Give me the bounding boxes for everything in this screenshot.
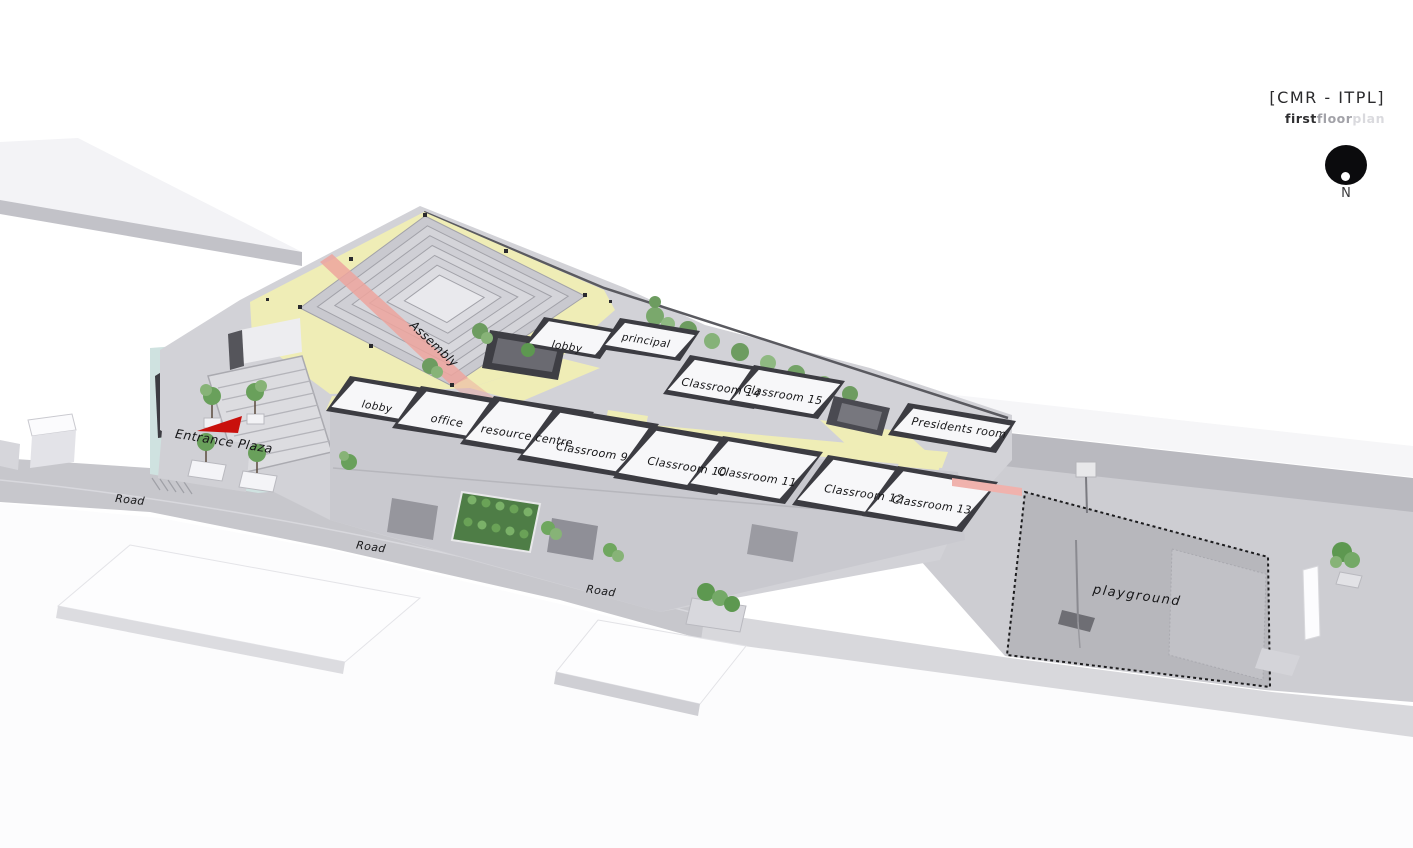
subtitle-word-first: first [1285, 111, 1317, 126]
drawing-subtitle: firstfloorplan [1205, 111, 1385, 126]
north-compass-dot [1341, 172, 1350, 181]
subtitle-word-floor: floor [1317, 111, 1353, 126]
first-floor-plan-render: Assembly lobby principal Classroom 14 Cl… [0, 0, 1413, 848]
drawing-title: [CMR - ITPL] [1205, 88, 1385, 107]
gatehouse-front [30, 430, 76, 468]
subtitle-word-plan: plan [1352, 111, 1385, 126]
gate-wall-stub [0, 440, 20, 470]
site-plan-canvas [0, 0, 1413, 848]
title-block: [CMR - ITPL] firstfloorplan [1205, 88, 1385, 126]
stair-back-wall-dark [228, 330, 244, 370]
north-label: N [1338, 186, 1354, 201]
